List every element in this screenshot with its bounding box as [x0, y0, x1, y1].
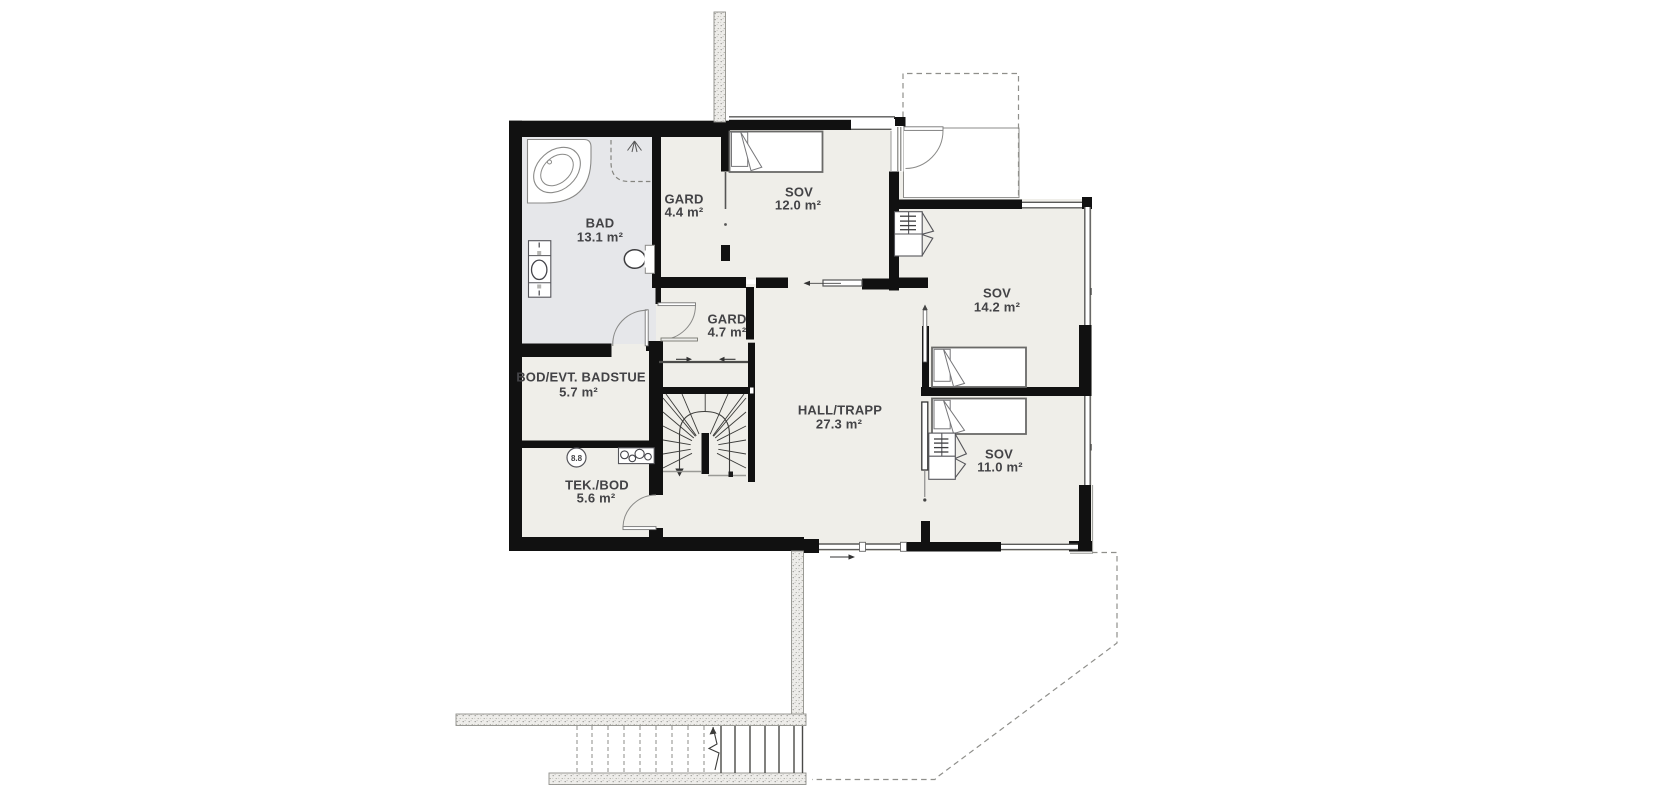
svg-text:12.0 m²: 12.0 m² — [775, 198, 822, 213]
svg-text:4.4 m²: 4.4 m² — [665, 205, 704, 220]
svg-text:13.1 m²: 13.1 m² — [577, 230, 624, 245]
svg-text:8.8: 8.8 — [571, 454, 583, 463]
svg-text:27.3 m²: 27.3 m² — [816, 417, 863, 432]
svg-text:4.7 m²: 4.7 m² — [708, 325, 747, 340]
svg-text:14.2 m²: 14.2 m² — [974, 300, 1021, 315]
svg-text:11.0 m²: 11.0 m² — [977, 460, 1023, 475]
svg-text:5.6 m²: 5.6 m² — [577, 491, 616, 506]
svg-text:BAD: BAD — [586, 216, 615, 231]
svg-text:HALL/TRAPP: HALL/TRAPP — [798, 403, 882, 418]
svg-text:5.7 m²: 5.7 m² — [559, 385, 598, 400]
svg-text:SOV: SOV — [983, 286, 1011, 301]
svg-text:BOD/EVT. BADSTUE: BOD/EVT. BADSTUE — [516, 370, 646, 385]
